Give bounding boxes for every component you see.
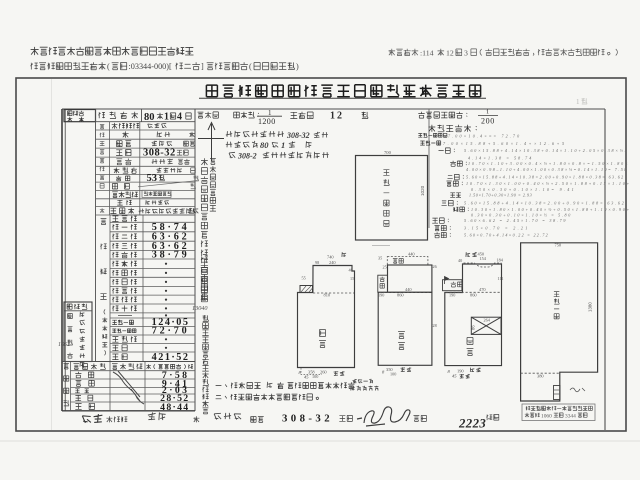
svg-text:740: 740 [327, 255, 334, 260]
svg-text:1: 1 [281, 140, 285, 150]
svg-text:15: 15 [350, 276, 354, 281]
svg-text:48·44: 48·44 [160, 402, 189, 413]
svg-text:308-32: 308-32 [143, 148, 176, 159]
svg-text::03344-000)[: :03344-000)[ [129, 62, 172, 71]
svg-text:13040: 13040 [192, 305, 208, 312]
svg-text:1062: 1062 [58, 342, 70, 348]
svg-text:184: 184 [497, 258, 504, 263]
svg-text:]: ] [201, 62, 204, 71]
svg-text:10.70×1.30×1.00+0.40×½+2.50×1.: 10.70×1.30×1.00+0.40×½+2.50×1.88+0.15×1.… [466, 181, 631, 186]
svg-text:750: 750 [555, 243, 562, 248]
svg-text:5.60×15.88+4.14×10.38=2.00+0.9: 5.60×15.88+4.14×10.38=2.00+0.90×1.88= 63… [464, 200, 626, 205]
svg-text:26: 26 [433, 264, 437, 269]
svg-text:380: 380 [537, 374, 544, 379]
svg-text:25: 25 [383, 265, 387, 270]
svg-text:1: 1 [486, 109, 489, 116]
svg-text:4.00×0.98–1.10+4.00×1.00×0.38×: 4.00×0.98–1.10+4.00×1.00×0.38×½=0.14×1.1… [466, 167, 628, 172]
svg-text:7.00×10.4×≈= 72.70: 7.00×10.4×≈= 72.70 [448, 133, 521, 138]
svg-text:98: 98 [315, 260, 319, 265]
svg-text:35: 35 [378, 256, 382, 261]
svg-text:190: 190 [457, 369, 464, 374]
svg-text:860: 860 [470, 293, 477, 298]
svg-text:4: 4 [177, 112, 182, 123]
svg-text:45: 45 [452, 374, 457, 379]
svg-text:5.60×0.70+4.14×0.22 = 22.72: 5.60×0.70+4.14×0.22 = 22.72 [464, 232, 549, 237]
svg-text:28: 28 [433, 323, 437, 328]
svg-text:1.50×1.70+0.30×1.90 = 2.93: 1.50×1.70+0.30×1.90 = 2.93 [469, 193, 532, 198]
svg-text:3.15×0.70 = 2.21: 3.15×0.70 = 2.21 [464, 225, 530, 230]
svg-text:4.14×1.38 = 58.74: 4.14×1.38 = 58.74 [468, 155, 533, 160]
svg-text:5.60×15.88+4.14×10.38=2.00+0.9: 5.60×15.88+4.14×10.38=2.00+0.90×1.88×0.3… [466, 174, 625, 179]
svg-text:470: 470 [479, 287, 486, 292]
svg-text:440: 440 [405, 287, 412, 292]
svg-text:40: 40 [458, 258, 462, 263]
svg-text:(: ( [249, 62, 252, 71]
svg-text:2223: 2223 [458, 417, 486, 431]
svg-text:154: 154 [480, 256, 487, 261]
svg-text:): ) [296, 62, 299, 71]
svg-text:190: 190 [378, 293, 384, 298]
svg-text:308-2: 308-2 [237, 152, 257, 161]
svg-text:190: 190 [449, 293, 455, 298]
svg-text:1060: 1060 [541, 413, 552, 419]
svg-text:12: 12 [330, 111, 344, 122]
svg-text:440: 440 [408, 252, 415, 257]
svg-text:860: 860 [397, 293, 404, 298]
svg-text:3: 3 [464, 49, 468, 58]
svg-text:5.60×15.88+4.14×10.38+0.14×1.1: 5.60×15.88+4.14×10.38+0.14×1.10+2.05×0.3… [464, 148, 628, 153]
svg-text:3344: 3344 [565, 413, 576, 419]
svg-text:80: 80 [260, 140, 269, 150]
svg-text:0.30×0.30+0.10×1.10×½ = 5.80: 0.30×0.30+0.10×1.10×½ = 5.80 [471, 212, 572, 217]
svg-text:5.60×6.62 = 2.45×1.70 = 38.79: 5.60×6.62 = 2.45×1.70 = 38.79 [464, 218, 567, 223]
svg-text:308-32: 308-32 [282, 413, 333, 425]
svg-text:7.00×15.88+5.60×1.4+×12.6+5: 7.00×15.88+5.60×1.4+×12.6+5 [443, 141, 567, 146]
svg-text:86: 86 [471, 325, 476, 330]
svg-text:45: 45 [304, 375, 309, 380]
svg-text:810: 810 [324, 293, 331, 298]
svg-text:53: 53 [147, 173, 158, 184]
svg-text:1: 1 [164, 112, 169, 123]
svg-text:1: 1 [576, 98, 580, 106]
svg-text:10.30+1.80×1.00+0.40×½+0.50×1.: 10.30+1.80×1.00+0.40×½+0.50×1.88+1.10×0.… [471, 207, 631, 212]
svg-text:240: 240 [329, 260, 336, 265]
svg-text:1020: 1020 [420, 185, 425, 196]
svg-text:264: 264 [484, 318, 491, 323]
svg-text:100: 100 [390, 372, 396, 377]
svg-text:10.70×1.10+3.00×0.4×½+1.80×0.8: 10.70×1.10+3.00×0.4×½+1.80×0.8×=1.50×1.8… [468, 161, 630, 166]
svg-text:308-32: 308-32 [286, 131, 310, 140]
svg-text:111: 111 [498, 276, 504, 281]
svg-text:55: 55 [302, 276, 306, 281]
svg-text:40: 40 [349, 268, 353, 273]
svg-text:12: 12 [446, 49, 454, 58]
svg-text::114: :114 [420, 49, 434, 58]
svg-text:200: 200 [481, 117, 495, 126]
svg-text:260: 260 [320, 370, 327, 375]
svg-text:0.30×0.30+0.10×1.10= 9.41: 0.30×0.30+0.10×1.10= 9.41 [471, 187, 576, 192]
svg-text:700: 700 [384, 150, 392, 155]
svg-text:1380: 1380 [588, 302, 593, 312]
svg-text:1200: 1200 [258, 117, 276, 126]
svg-text:(: ( [107, 62, 110, 71]
